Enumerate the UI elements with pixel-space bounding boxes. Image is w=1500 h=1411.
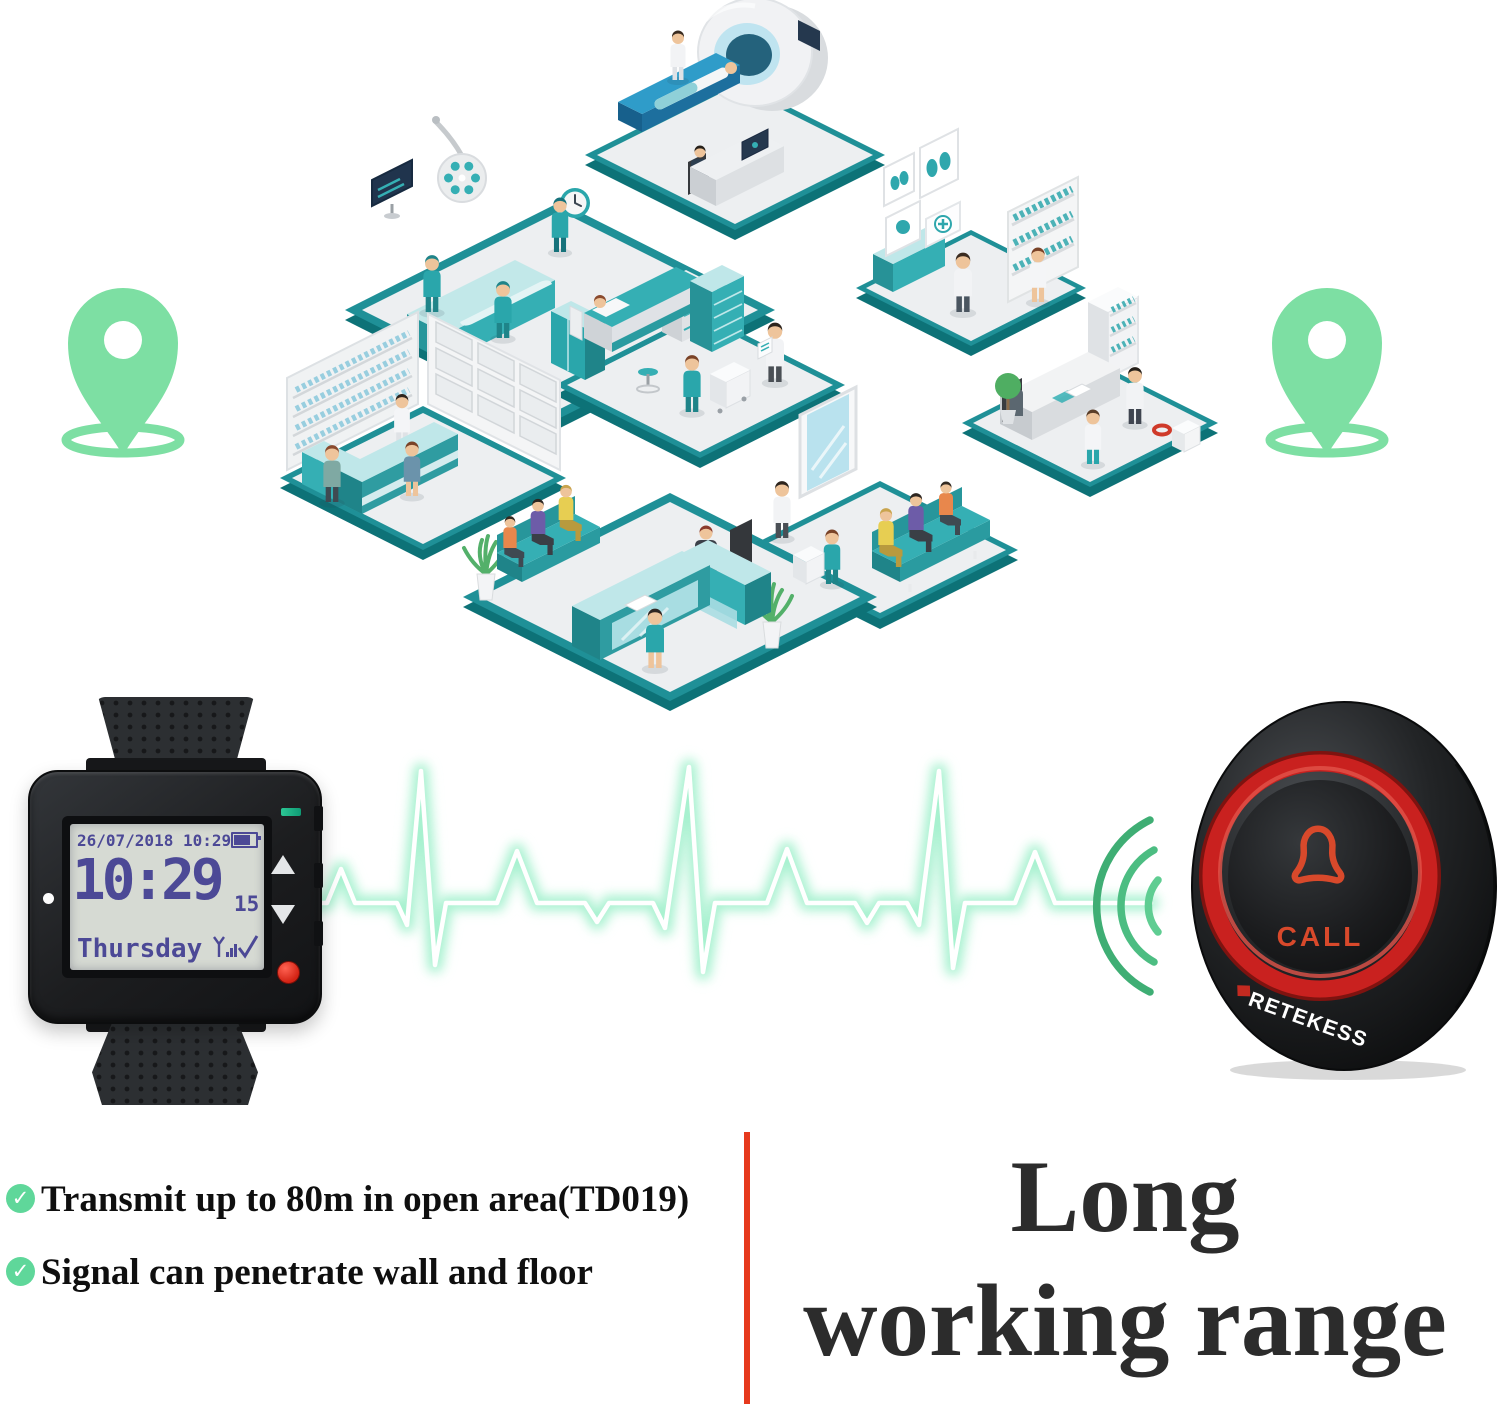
down-button[interactable]	[271, 905, 295, 924]
check-icon: ✓	[6, 1184, 35, 1213]
feature-text: Signal can penetrate wall and floor	[41, 1251, 593, 1295]
call-button-device[interactable]: CALL RETEKESS	[1188, 698, 1498, 1080]
status-led-icon	[281, 808, 301, 816]
headline-line2: working range	[752, 1260, 1498, 1384]
up-button[interactable]	[271, 855, 295, 874]
monitor-icon	[372, 160, 412, 219]
watch-seconds: 15	[234, 892, 259, 916]
ecg-heartbeat-line	[285, 735, 1175, 1025]
watch-time: 10:29	[72, 848, 221, 913]
feature-item: ✓ Transmit up to 80m in open area(TD019)	[6, 1178, 741, 1222]
call-button-label: CALL	[1277, 921, 1364, 952]
feature-item: ✓ Signal can penetrate wall and floor	[6, 1251, 741, 1295]
battery-icon	[231, 832, 258, 848]
feature-list: ✓ Transmit up to 80m in open area(TD019)…	[6, 1178, 741, 1325]
headline-line1: Long	[752, 1136, 1498, 1260]
watch-day: Thursday	[77, 934, 202, 964]
watch-dot-icon	[43, 893, 54, 904]
location-pin-left-icon	[66, 288, 180, 455]
check-icon: ✓	[6, 1257, 35, 1286]
watch-side-button[interactable]	[314, 921, 323, 946]
feature-text: Transmit up to 80m in open area(TD019)	[41, 1178, 689, 1222]
signal-waves-icon	[1092, 806, 1170, 1006]
surgical-light-icon	[438, 154, 486, 202]
watch-lcd: 26/07/2018 10:29 10:29 15 Thursday	[70, 824, 264, 970]
red-divider	[744, 1132, 750, 1404]
watch-side-button[interactable]	[314, 806, 323, 831]
signal-strength-icon	[211, 931, 259, 961]
watch-side-button[interactable]	[314, 863, 323, 888]
location-pin-right-icon	[1270, 288, 1384, 455]
headline: Long working range	[752, 1136, 1498, 1383]
watch-strap-bottom	[92, 1023, 258, 1105]
confirm-red-button[interactable]	[277, 961, 300, 984]
hospital-illustration	[0, 0, 1500, 780]
